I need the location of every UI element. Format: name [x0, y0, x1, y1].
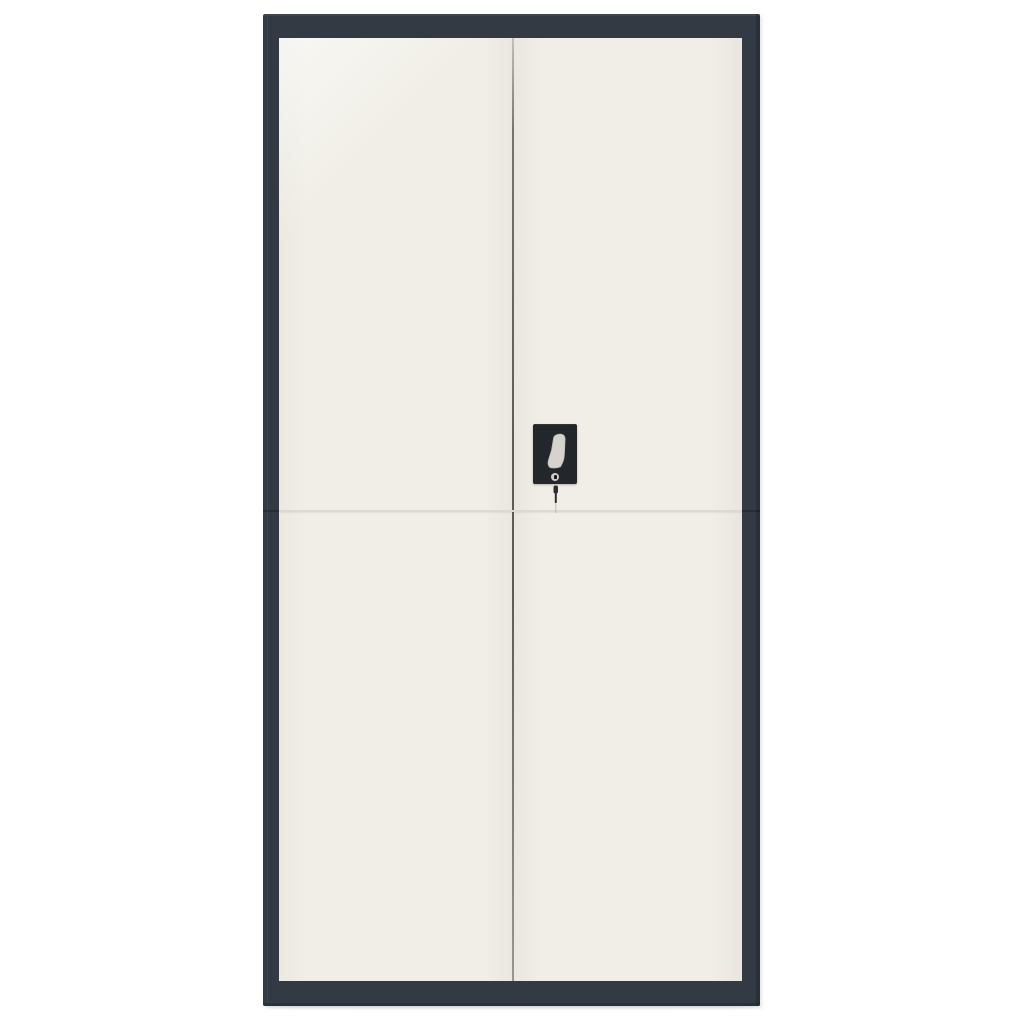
key-cord — [555, 503, 556, 513]
product-photo-scene — [0, 0, 1024, 1024]
lock-plate — [533, 424, 577, 484]
doors-panel — [279, 38, 742, 981]
key-shaft — [555, 491, 557, 503]
keyhole-slot — [554, 475, 557, 479]
lever-handle-shape — [548, 434, 565, 468]
keyhole — [551, 473, 559, 481]
frame-mid-seam-left — [263, 510, 279, 512]
door-seam-horizontal — [279, 510, 742, 512]
frame-mid-seam-right — [742, 510, 760, 512]
frame-bottom-edge — [263, 1003, 760, 1006]
file-cabinet — [263, 14, 760, 1006]
frame-top-edge — [263, 14, 760, 16]
key — [551, 485, 560, 515]
